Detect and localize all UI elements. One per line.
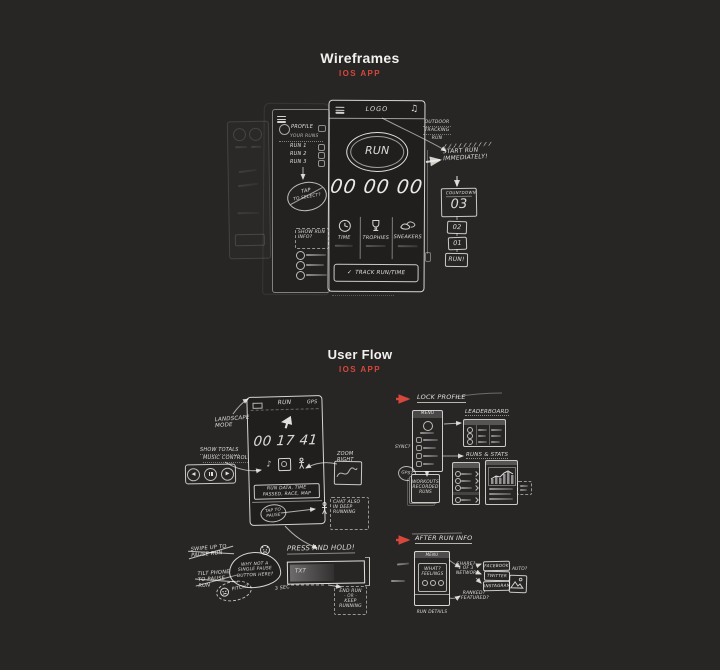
tab-label: TIME (329, 236, 360, 242)
menu-item-icon (318, 144, 325, 151)
outdoor-line: RUN (423, 135, 451, 141)
menu-item: RUN 3 (290, 160, 307, 166)
music-note-icon: ♫ (410, 104, 418, 114)
mood-icon (422, 580, 428, 586)
legend-line (306, 264, 324, 266)
caption-dotted-line (332, 295, 394, 296)
cell-line (478, 435, 486, 437)
section-strip (453, 492, 479, 495)
photo-mountains-icon (510, 576, 524, 590)
cell-line (491, 429, 502, 431)
profile-menu-phone: MENU (412, 410, 443, 472)
landscape-note: LANDSCAPE MODE (215, 415, 250, 430)
menu-header: MENU (413, 411, 442, 418)
note-line (520, 489, 527, 491)
gps-label: GPS (307, 400, 318, 406)
feelings-line: FEELINGS (419, 572, 446, 577)
col-divider (476, 425, 477, 445)
tab-time: TIME (329, 219, 360, 242)
media-row: ♪ (249, 456, 323, 472)
col-divider (489, 425, 490, 445)
outdoor-line: TRACKING (423, 127, 451, 135)
menu-item: RUN 2 (290, 152, 307, 158)
mood-icon (430, 580, 436, 586)
music-control-box: ◀ ▶ (185, 464, 236, 485)
stopwatch-icon (278, 457, 291, 470)
stats-phone (485, 460, 518, 505)
card-front: WORKOUTS RECORDED RUNS (411, 474, 440, 503)
more-stats-note (517, 481, 532, 495)
main-wireframe-phone: LOGO ♫ RUN 00 00 00 TIME TROPHIES SNEAKE… (327, 100, 425, 293)
count-box-01: 01 (448, 237, 467, 251)
menu-header-text: MENU (421, 412, 435, 417)
menu-header: MENU (415, 552, 449, 558)
cell-line (491, 435, 501, 437)
angry-face-doodle (218, 586, 231, 599)
prev-track-icon: ◀ (187, 468, 200, 481)
stat-row-line (489, 493, 511, 495)
chevron-right-icon (473, 471, 479, 477)
count-box-run: RUN! (445, 253, 468, 267)
after-run-phone: MENU WHAT? FEELINGS RUN DETAILS (414, 551, 450, 606)
auto-label: AUTO? (512, 568, 527, 573)
tab-label: SNEAKERS (392, 235, 424, 241)
runner-icon (297, 457, 306, 469)
track-run-bar: ✓ TRACK RUN/TIME (334, 264, 419, 282)
ghost-line (235, 146, 247, 148)
bottom-divider (252, 500, 322, 503)
legend-bullet (296, 251, 305, 260)
row-box (416, 461, 422, 467)
run-details-bar: RUN DETAILS (415, 594, 449, 617)
devil-face-doodle (258, 542, 272, 556)
workout-cards: WORKOUTS RECORDED RUNS (411, 474, 439, 504)
row-line (461, 473, 472, 475)
swipe-indicator-line (427, 150, 428, 254)
route-squiggle (335, 462, 359, 482)
leaderboard-table (463, 419, 506, 447)
outdoor-line: OUTDOOR (423, 120, 451, 127)
swipe-indicator-handle (425, 252, 431, 262)
list-header (453, 463, 479, 468)
sneakers-icon (399, 219, 417, 232)
chevron-right-icon (473, 497, 479, 503)
dotted-divider (279, 141, 323, 142)
run-timer: 00 17 41 (248, 433, 323, 450)
row-box (416, 453, 422, 459)
rank-avatar (467, 439, 473, 445)
countdown-value: 03 (442, 197, 476, 213)
runs-list-phone (452, 462, 480, 505)
end-run-line: KEEP RUNNING (335, 599, 366, 609)
tab-trophies: TROPHIES (360, 219, 392, 242)
chat-note: CHAT ALSO IN DEEP RUNNING (330, 497, 369, 530)
tab-underline (335, 245, 353, 247)
avatar (423, 421, 433, 431)
duration-label: 3 SEC (275, 585, 291, 593)
chat-person-icon (320, 502, 329, 515)
row-line (461, 480, 471, 482)
zoom-note-box (334, 461, 362, 485)
sync-note: SYNC? (395, 445, 411, 450)
menu-item-icon (318, 160, 325, 167)
chat-note-text: CHAT ALSO IN DEEP RUNNING (333, 500, 366, 516)
runs-caption: YOUR RUNS (290, 134, 319, 139)
side-squiggle (391, 580, 405, 582)
data-bar-text: RUN DATA, TIME PASSED, RACE, MAP (255, 485, 319, 497)
mood-icon (438, 580, 444, 586)
run-phone: RUN GPS 00 17 41 ♪ RUN DATA, TIME PASSED… (246, 395, 325, 526)
clock-icon (337, 219, 351, 233)
check-icon: ✓ (347, 269, 352, 276)
featured-note: RANKED? FEATURED? (461, 591, 487, 601)
press-hold-title: PRESS AND HOLD! (287, 543, 355, 554)
wireframes-title: Wireframes (0, 50, 720, 66)
pitch-text: PITCH? (231, 584, 249, 592)
menu-header-text: MENU (426, 553, 439, 558)
menu-item: RUN 1 (290, 144, 307, 150)
hold-progress-bar: TXT (287, 560, 365, 584)
network-box-twitter: TWITTER (484, 571, 510, 581)
tab-underline (398, 245, 418, 247)
chevron-right-icon (473, 485, 479, 491)
profile-box (318, 125, 326, 132)
cloud-text: WHY NOT A SINGLE PAUSE BUTTON HERE? (230, 559, 281, 581)
name-line (420, 432, 434, 434)
legend-row (296, 271, 328, 279)
legend-bullet (296, 261, 305, 270)
hamburger-icon (277, 114, 286, 124)
cell-line (478, 441, 487, 443)
end-run-note: END RUN - OR - KEEP RUNNING (334, 586, 367, 615)
next-track-icon: ▶ (221, 467, 234, 480)
wireframes-subtitle: IOS APP (0, 69, 720, 78)
pause-bubble: TAP TO PAUSE (259, 503, 287, 524)
stat-row-line (489, 488, 513, 490)
legend-row (296, 261, 328, 269)
start-run-note: START RUN IMMEDIATELY! (443, 147, 494, 163)
chevron-right-icon (473, 478, 479, 484)
menu-item-icon (318, 152, 325, 159)
count-box-02: 02 (447, 221, 467, 235)
end-run-line: - OR - (335, 594, 366, 599)
note-line (520, 485, 528, 487)
cards-note-text: WORKOUTS RECORDED RUNS (411, 480, 440, 497)
row-line (461, 487, 472, 489)
cell-line (491, 441, 500, 443)
photo-sketch (509, 575, 528, 594)
row-line (423, 439, 438, 441)
info-note-text: SHOW RUN INFO? (298, 230, 325, 240)
stat-row-line (489, 498, 513, 500)
legend-bullet (296, 271, 305, 280)
row-box (416, 437, 422, 443)
after-run-title: AFTER RUN INFO (415, 535, 472, 544)
tab-sneakers: SNEAKERS (392, 219, 424, 241)
ghost-circle (249, 128, 262, 141)
row-line (423, 463, 434, 465)
row-box (416, 445, 422, 451)
countdown-label: COUNTDOWN (446, 191, 472, 197)
ghost-line (238, 183, 258, 187)
row-line (461, 499, 471, 501)
timer-digits: 00 00 00 (327, 177, 425, 199)
avatar (279, 124, 290, 135)
totals-note-2: MUSIC CONTROL (203, 456, 248, 463)
legend-row (296, 251, 328, 259)
profile-label: PROFILE (291, 125, 313, 131)
userflow-subtitle: IOS APP (0, 365, 720, 374)
tab-underline (366, 245, 386, 247)
totals-note-1: SHOW TOTALS (200, 448, 239, 455)
share-line: NETWORK (456, 572, 476, 577)
network-box-facebook: FACEBOOK (483, 561, 510, 571)
pause-bubble-text: TAP TO PAUSE (261, 507, 286, 519)
share-note: SHARE? 1 OF 3 NETWORK (456, 562, 476, 577)
ghost-line (251, 146, 261, 148)
leaderboard-title: LEADERBOARD (465, 409, 509, 416)
tab-label: TROPHIES (360, 236, 392, 242)
runs-stats-title: RUNS & STATS (466, 452, 508, 459)
side-squiggle (397, 562, 409, 565)
table-header (464, 420, 505, 425)
featured-line: FEATURED? (461, 596, 487, 601)
ghost-line (239, 169, 257, 173)
run-button: RUN (346, 132, 408, 172)
select-bubble: TAP TO SELECT? (285, 179, 329, 215)
row-line (423, 455, 438, 457)
run-button-label: RUN (347, 145, 407, 158)
bar-end-bracket (365, 557, 370, 586)
countdown-box: COUNTDOWN 03 (441, 188, 478, 218)
outdoor-note: OUTDOOR TRACKING RUN (423, 120, 451, 142)
track-run-label: TRACK RUN/TIME (355, 270, 405, 277)
poster-canvas: Wireframes IOS APP User Flow IOS APP PRO… (0, 0, 720, 670)
bar-label: TXT (295, 568, 306, 575)
music-note-icon: ♪ (266, 460, 272, 469)
stats-header (486, 461, 517, 465)
bar-chart-sketch (488, 467, 516, 486)
info-note: SHOW RUN INFO? (295, 228, 329, 249)
ghost-box (235, 234, 265, 247)
trophy-icon (369, 219, 383, 233)
feelings-box: WHAT? FEELINGS (418, 563, 447, 592)
crossed-idea-1: SWIPE UP TO PAUSE RUN (191, 544, 232, 559)
ghost-circle (233, 128, 246, 141)
legend-line (306, 274, 327, 276)
row-line (423, 447, 436, 449)
cursor-icon (281, 416, 293, 430)
userflow-title: User Flow (0, 347, 720, 362)
ghost-line (237, 212, 259, 214)
run-details-text: RUN DETAILS (417, 610, 448, 615)
topbar: LOGO ♫ (329, 101, 424, 119)
pause-icon (204, 467, 217, 480)
network-box-instagram: INSTAGRAM (483, 581, 510, 591)
lock-profile-title: LOCK PROFILE (417, 394, 466, 403)
cell-line (478, 429, 487, 431)
legend-line (306, 254, 326, 256)
data-bar: RUN DATA, TIME PASSED, RACE, MAP (254, 483, 320, 500)
